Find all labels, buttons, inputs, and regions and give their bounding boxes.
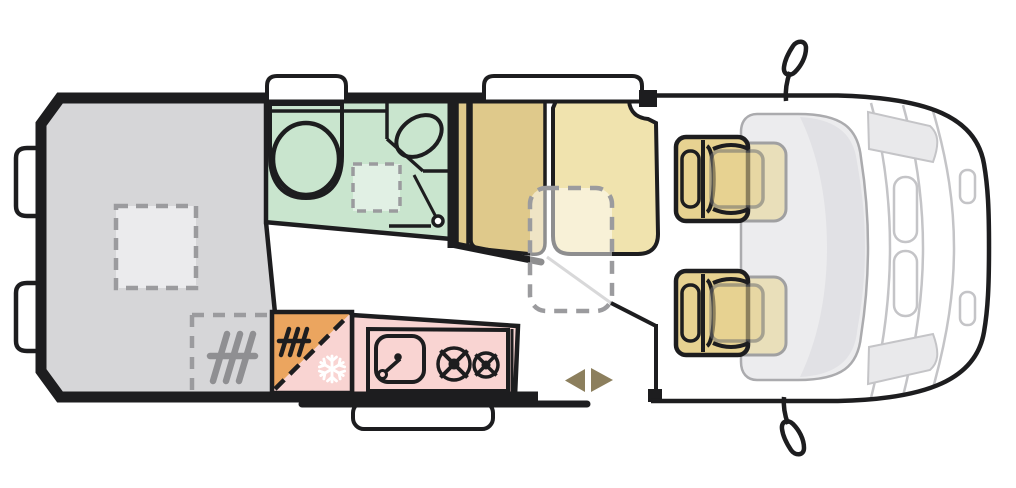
dinette-table (530, 188, 612, 311)
rear-bed-area (42, 100, 275, 395)
window-dinette (484, 76, 642, 100)
wall-end-post (639, 90, 657, 107)
sliding-door-arrows-icon (565, 368, 613, 392)
roof-skylight (116, 206, 196, 288)
kitchen-area (352, 315, 518, 396)
side-mirror-top-icon (784, 42, 806, 101)
door-pillar (611, 303, 662, 402)
shower-tray (353, 164, 400, 211)
fridge-area (272, 312, 352, 393)
toilet-bowl (273, 123, 339, 195)
front-shading-wedges (868, 112, 937, 384)
headlight-icons (960, 170, 975, 325)
grille-icon (894, 177, 917, 316)
passenger-seat (676, 137, 786, 221)
window-bathroom (267, 76, 346, 100)
dinette-area (451, 99, 658, 311)
door-arrow-left (565, 369, 585, 392)
side-mirror-bottom-icon (782, 397, 804, 454)
bathroom-area (264, 98, 456, 313)
driver-seat (676, 271, 786, 355)
bench-backrest (457, 101, 468, 246)
entry-area (302, 402, 587, 429)
floorplan-canvas (0, 0, 1016, 488)
door-arrow-right (591, 368, 613, 392)
